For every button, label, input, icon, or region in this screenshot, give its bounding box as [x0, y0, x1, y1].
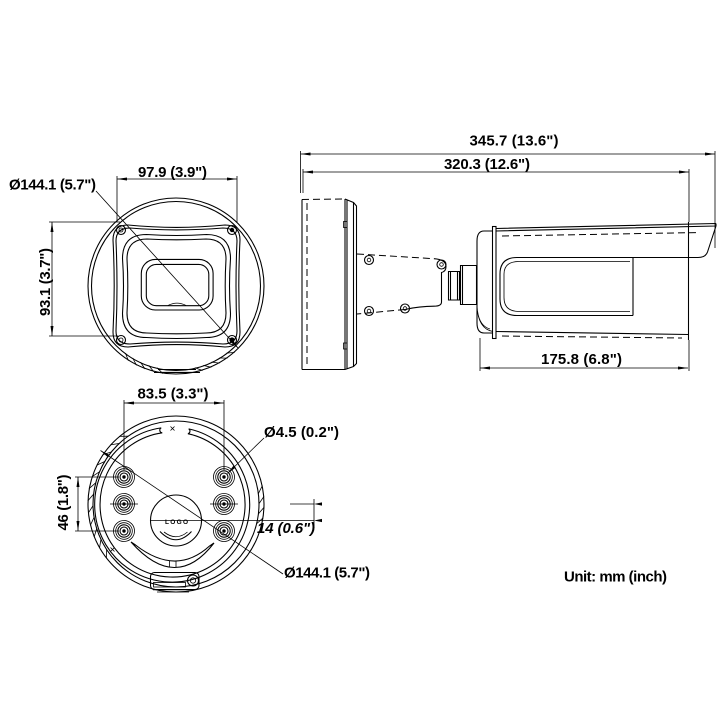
svg-text:97.9 (3.9"): 97.9 (3.9")	[138, 164, 207, 181]
svg-text:Unit: mm (inch): Unit: mm (inch)	[564, 569, 667, 586]
svg-text:320.3 (12.6"): 320.3 (12.6")	[444, 156, 530, 173]
svg-text:175.8 (6.8"): 175.8 (6.8")	[541, 351, 622, 368]
svg-text:Ø4.5 (0.2"): Ø4.5 (0.2")	[264, 424, 339, 441]
svg-text:Ø144.1 (5.7"): Ø144.1 (5.7")	[9, 177, 96, 194]
svg-text:14 (0.6"): 14 (0.6")	[257, 520, 315, 537]
svg-text:46 (1.8"): 46 (1.8")	[55, 475, 72, 531]
svg-text:345.7 (13.6"): 345.7 (13.6")	[470, 133, 559, 150]
svg-text:LOGO: LOGO	[165, 519, 188, 526]
svg-text:83.5 (3.3"): 83.5 (3.3")	[138, 386, 209, 403]
svg-text:Ø144.1 (5.7"): Ø144.1 (5.7")	[284, 565, 370, 582]
svg-text:93.1 (3.7"): 93.1 (3.7")	[37, 248, 54, 316]
